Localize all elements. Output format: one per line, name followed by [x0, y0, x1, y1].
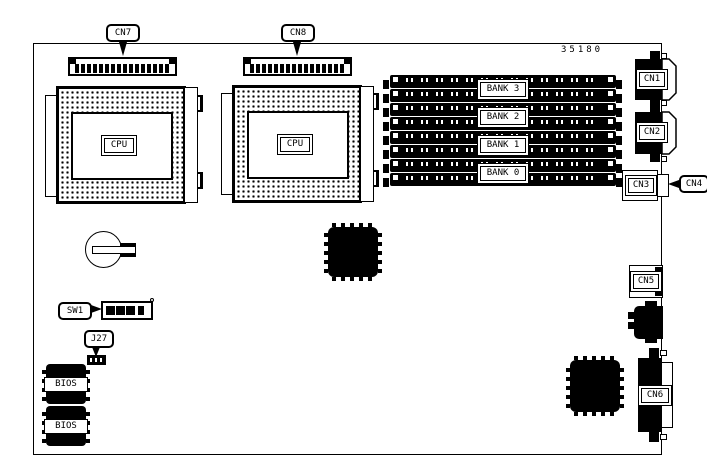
cpu1-retention-bar-right	[184, 87, 198, 203]
sw1-index-dot	[150, 298, 154, 302]
callout-cn8-pointer	[293, 42, 301, 56]
cpu2-retention-bar-right	[360, 86, 374, 202]
qfp2-chip	[570, 360, 620, 412]
bank1-label: BANK 1	[480, 138, 526, 153]
sw1-dip-switch	[101, 301, 153, 320]
cn7-connector	[68, 57, 177, 76]
cpu1-socket: CPU	[56, 86, 186, 204]
simm-rail-left	[383, 75, 389, 187]
cpu2-socket-cavity: CPU	[247, 111, 349, 179]
qfp1-pins-right	[378, 231, 382, 273]
qfp2-pins-right	[620, 364, 624, 408]
cn8-connector	[243, 57, 352, 76]
cpu1-label: CPU	[104, 138, 134, 153]
cn2-label: CN2	[639, 125, 665, 140]
motherboard-diagram: CN7 CN8 CPU CPU BANK 3 BANK 2 BANK 1 BAN…	[0, 0, 707, 467]
cn6-tab-bottom	[649, 432, 659, 442]
cn2-notch-bottom	[661, 156, 667, 162]
callout-cn7-pointer	[119, 42, 127, 56]
qfp2-pins-bottom	[574, 412, 616, 416]
cn7-connector-pins	[75, 64, 170, 73]
callout-cn4-pointer	[668, 180, 679, 188]
cn6-notch-top	[660, 350, 667, 356]
cpu2-label: CPU	[280, 137, 310, 152]
cn6-notch-bottom	[660, 434, 667, 440]
qfp1-pins-bottom	[332, 277, 374, 281]
callout-j27: J27	[84, 330, 114, 348]
qfp1-chip	[328, 227, 378, 277]
callout-cn4: CN4	[679, 175, 707, 193]
cn5-label: CN5	[633, 274, 659, 289]
callout-sw1: SW1	[58, 302, 92, 320]
audio-connector	[634, 306, 663, 339]
battery-clip-arm	[92, 246, 136, 254]
cpu1-clip-bottom	[197, 172, 203, 189]
cn3-label: CN3	[628, 178, 654, 193]
bank3-label: BANK 3	[480, 82, 526, 97]
callout-cn7: CN7	[106, 24, 140, 42]
bios1-label: BIOS	[44, 377, 88, 392]
board-number: 35180	[561, 45, 603, 55]
cpu2-socket: CPU	[232, 85, 362, 203]
callout-sw1-pointer	[91, 305, 102, 313]
bank0-label: BANK 0	[480, 166, 526, 181]
callout-j27-pointer	[92, 347, 100, 357]
bios2-label: BIOS	[44, 419, 88, 434]
sw1-dip-switch-positions	[106, 306, 148, 315]
cn6-label: CN6	[641, 388, 669, 403]
cpu1-clip-top	[197, 95, 203, 112]
cpu2-clip-top	[373, 93, 379, 110]
bank2-label: BANK 2	[480, 110, 526, 125]
cpu1-socket-cavity: CPU	[71, 112, 173, 180]
cn2-tab-bottom	[650, 154, 660, 162]
cn8-connector-pins	[250, 64, 345, 73]
cpu2-clip-bottom	[373, 170, 379, 187]
cn1-notch-bottom	[661, 100, 667, 106]
cn6-tab-top	[649, 348, 659, 358]
callout-cn8: CN8	[281, 24, 315, 42]
cn1-label: CN1	[639, 72, 665, 87]
